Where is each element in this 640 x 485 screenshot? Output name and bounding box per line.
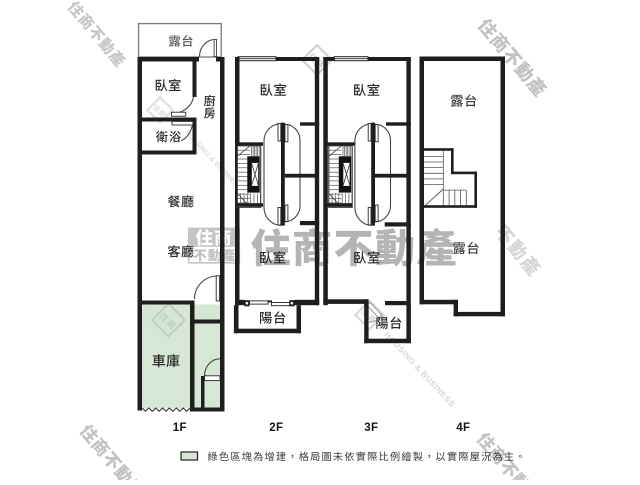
- svg-text:2F: 2F: [269, 422, 283, 434]
- svg-text:1F: 1F: [173, 422, 187, 434]
- svg-text:3F: 3F: [364, 422, 378, 434]
- svg-text:4F: 4F: [456, 422, 470, 434]
